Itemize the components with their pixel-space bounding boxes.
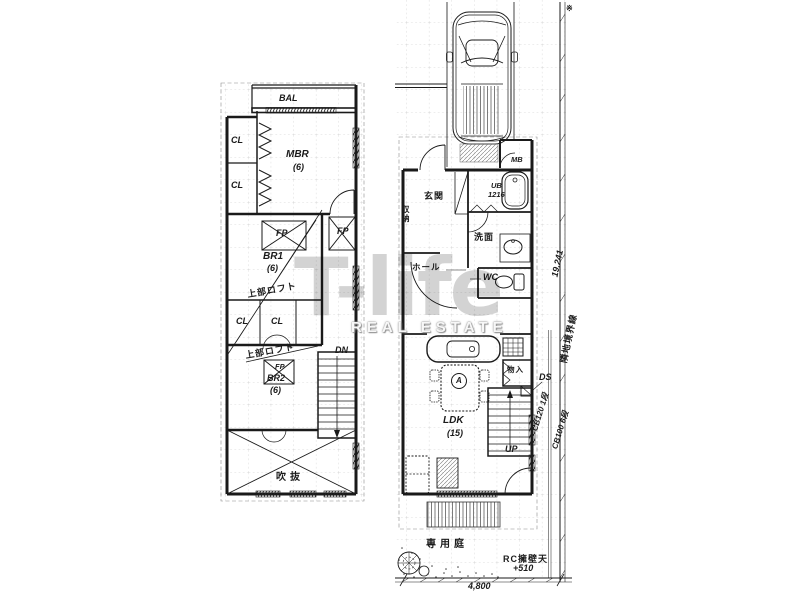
label-fp-2: FP: [337, 227, 349, 236]
label-entrance: 玄関: [424, 192, 444, 201]
label-retaining-level: +510: [513, 564, 533, 573]
label-ref-mark: ※: [566, 5, 574, 13]
window: [529, 455, 535, 471]
window: [290, 491, 316, 497]
label-mbr-area: (6): [293, 163, 304, 172]
watermark-subtitle: REAL ESTATE: [351, 320, 508, 335]
label-closet-1: CL: [231, 136, 243, 145]
label-fp-1: FP: [276, 229, 288, 238]
label-fp-3: FP: [275, 363, 285, 371]
label-br2: BR2: [267, 374, 285, 383]
floorplan-page: BAL CL CL MBR (6) FP FP BR1 (6) 上部ロフト CL…: [0, 0, 800, 600]
window: [437, 491, 497, 497]
label-ub-size: 1216: [488, 191, 505, 199]
window: [324, 491, 346, 497]
window: [353, 128, 359, 168]
label-table-mark: A: [456, 377, 462, 385]
label-mb: MB: [511, 156, 523, 164]
label-mbr: MBR: [286, 150, 309, 160]
label-storage: 収納: [401, 205, 409, 223]
porch-step: [460, 144, 498, 162]
label-stairs-dn: DN: [335, 346, 348, 355]
label-dim-width: 4,800: [468, 582, 491, 591]
window: [353, 443, 359, 469]
label-ldk-area: (15): [447, 429, 463, 438]
label-garden: 専用庭: [426, 540, 468, 550]
label-balcony: BAL: [279, 94, 298, 103]
watermark-logo: T-life: [294, 248, 502, 328]
label-br1-area: (6): [267, 264, 278, 273]
label-ldk: LDK: [443, 416, 464, 426]
label-ds: DS: [539, 373, 552, 382]
window: [256, 491, 280, 497]
label-ub: UB: [491, 182, 502, 190]
wood-deck: [427, 502, 500, 527]
label-closet-2: CL: [231, 181, 243, 190]
label-closet-4: CL: [271, 317, 283, 326]
label-closet: 物入: [507, 366, 524, 374]
label-br2-area: (6): [270, 386, 281, 395]
label-br1: BR1: [263, 252, 283, 262]
label-stairs-up: UP: [505, 445, 518, 454]
coffee-table: [437, 458, 458, 488]
label-closet-3: CL: [236, 317, 248, 326]
label-void: 吹抜: [276, 473, 304, 483]
